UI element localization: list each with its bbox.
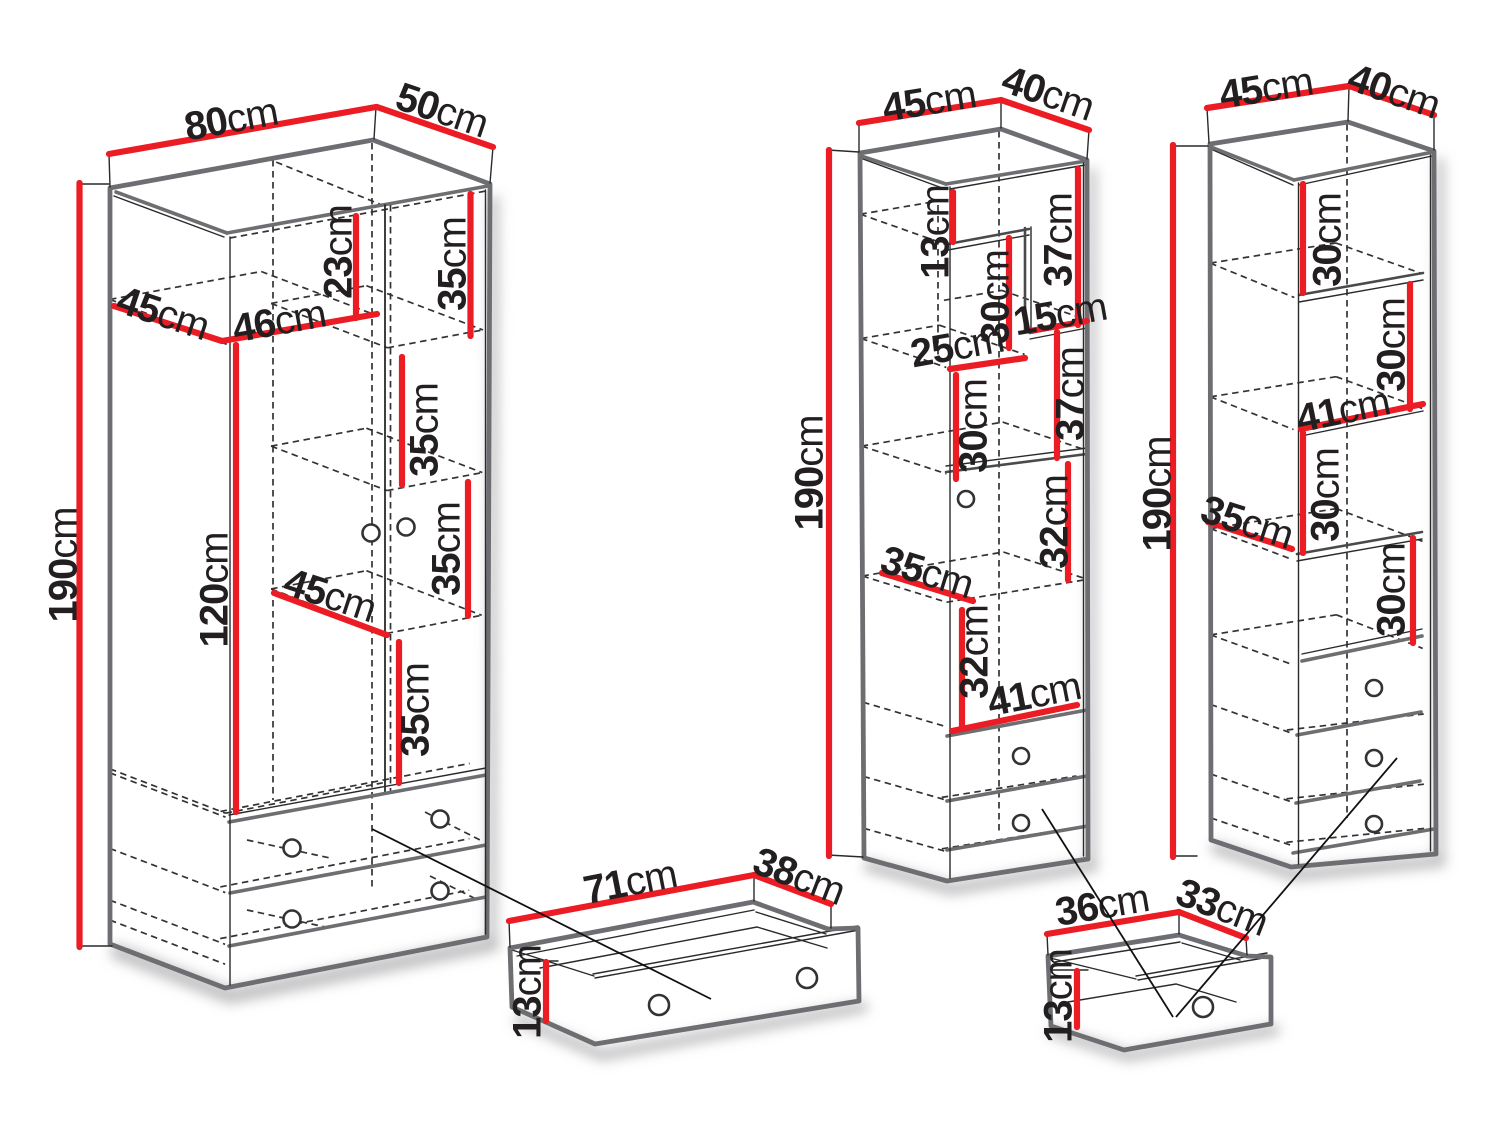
- svg-text:13cm: 13cm: [914, 185, 958, 279]
- svg-text:30cm: 30cm: [1370, 543, 1414, 637]
- svg-text:32cm: 32cm: [1033, 475, 1077, 569]
- svg-text:30cm: 30cm: [952, 379, 996, 473]
- svg-text:35cm: 35cm: [431, 217, 475, 311]
- svg-text:35cm: 35cm: [425, 502, 469, 596]
- svg-text:35cm: 35cm: [403, 383, 447, 477]
- svg-text:190cm: 190cm: [42, 507, 86, 622]
- svg-text:13cm: 13cm: [1037, 949, 1081, 1043]
- svg-text:30cm: 30cm: [1304, 448, 1348, 542]
- svg-text:13cm: 13cm: [506, 945, 550, 1039]
- svg-text:30cm: 30cm: [1306, 193, 1350, 287]
- svg-text:190cm: 190cm: [1136, 436, 1180, 551]
- svg-text:37cm: 37cm: [1037, 193, 1081, 287]
- svg-text:120cm: 120cm: [193, 532, 237, 647]
- svg-text:35cm: 35cm: [394, 663, 438, 757]
- svg-text:23cm: 23cm: [317, 205, 361, 299]
- svg-text:37cm: 37cm: [1049, 347, 1093, 441]
- svg-text:190cm: 190cm: [788, 415, 832, 530]
- svg-text:30cm: 30cm: [1370, 298, 1414, 392]
